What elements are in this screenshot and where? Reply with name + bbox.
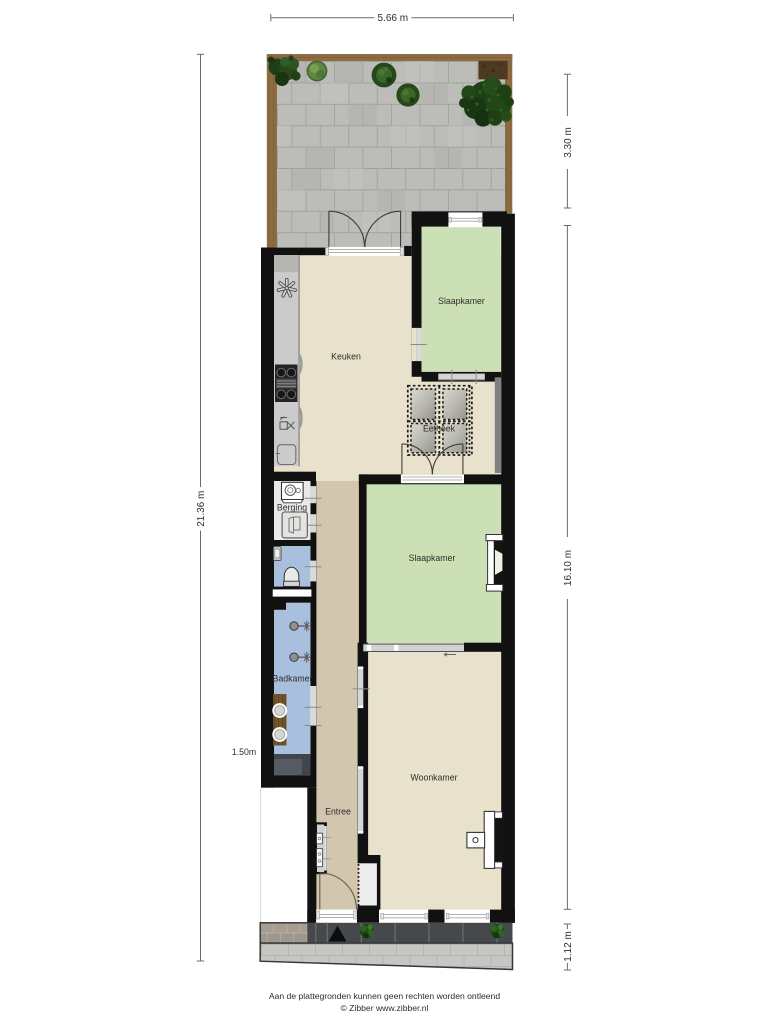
svg-text:Woonkamer: Woonkamer	[410, 773, 457, 783]
svg-text:1.12 m: 1.12 m	[563, 931, 574, 962]
svg-text:Slaapkamer: Slaapkamer	[438, 296, 485, 306]
svg-text:Berging: Berging	[277, 503, 307, 513]
svg-text:21.36 m: 21.36 m	[196, 491, 207, 527]
svg-text:Slaapkamer: Slaapkamer	[409, 553, 456, 563]
svg-text:Eethoek: Eethoek	[423, 424, 456, 434]
svg-text:3.30 m: 3.30 m	[563, 127, 574, 158]
svg-text:© Zibber www.zibber.nl: © Zibber www.zibber.nl	[340, 1003, 428, 1013]
svg-text:5.66 m: 5.66 m	[378, 13, 409, 24]
svg-text:Keuken: Keuken	[331, 352, 361, 362]
svg-text:Entree: Entree	[325, 807, 351, 817]
svg-text:Aan de plattegronden kunnen ge: Aan de plattegronden kunnen geen rechten…	[269, 991, 500, 1001]
svg-text:1.50m: 1.50m	[232, 747, 256, 757]
svg-text:Badkamer: Badkamer	[273, 674, 313, 684]
svg-text:16.10 m: 16.10 m	[563, 550, 574, 586]
